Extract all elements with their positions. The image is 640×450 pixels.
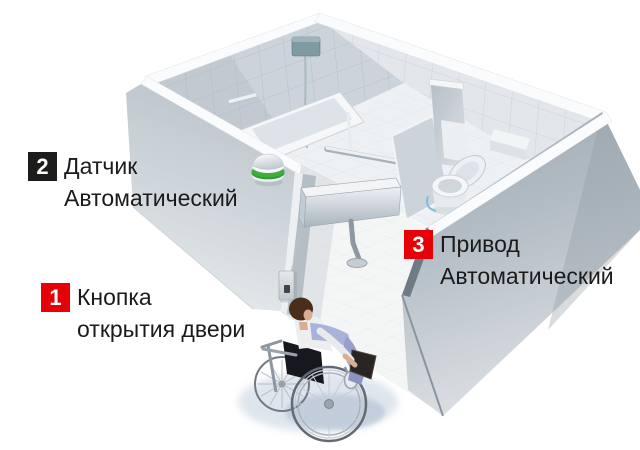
callout-3-label: Привод Автоматический bbox=[440, 228, 614, 292]
callout-1-number-badge: 1 bbox=[41, 283, 70, 312]
callout-3-number-badge: 3 bbox=[404, 230, 433, 259]
callout-3-line-1: Привод bbox=[440, 228, 614, 260]
actuator-floor-foot bbox=[347, 259, 367, 268]
infographic-accessible-bathroom: 1 Кнопка открытия двери 2 Датчик Автомат… bbox=[0, 0, 640, 450]
callout-1-label: Кнопка открытия двери bbox=[77, 281, 245, 345]
callout-2-line-2: Автоматический bbox=[64, 182, 238, 214]
wheelchair-push-handle bbox=[262, 341, 281, 347]
door-open-button bbox=[279, 271, 297, 303]
callout-1-door-button: 1 Кнопка открытия двери bbox=[41, 283, 245, 345]
callout-2-sensor: 2 Датчик Автоматический bbox=[28, 152, 238, 214]
callout-3-actuator: 3 Привод Автоматический bbox=[404, 230, 614, 292]
bathroom-3d-cutaway-illustration bbox=[0, 0, 640, 450]
callout-3-line-2: Автоматический bbox=[440, 260, 614, 292]
callout-2-label: Датчик Автоматический bbox=[64, 150, 238, 214]
callout-1-line-2: открытия двери bbox=[77, 313, 245, 345]
callout-1-line-1: Кнопка bbox=[77, 281, 245, 313]
motion-sensor bbox=[252, 154, 285, 186]
button-slot bbox=[284, 285, 290, 293]
callout-2-line-1: Датчик bbox=[64, 150, 238, 182]
callout-2-number-badge: 2 bbox=[28, 152, 57, 181]
